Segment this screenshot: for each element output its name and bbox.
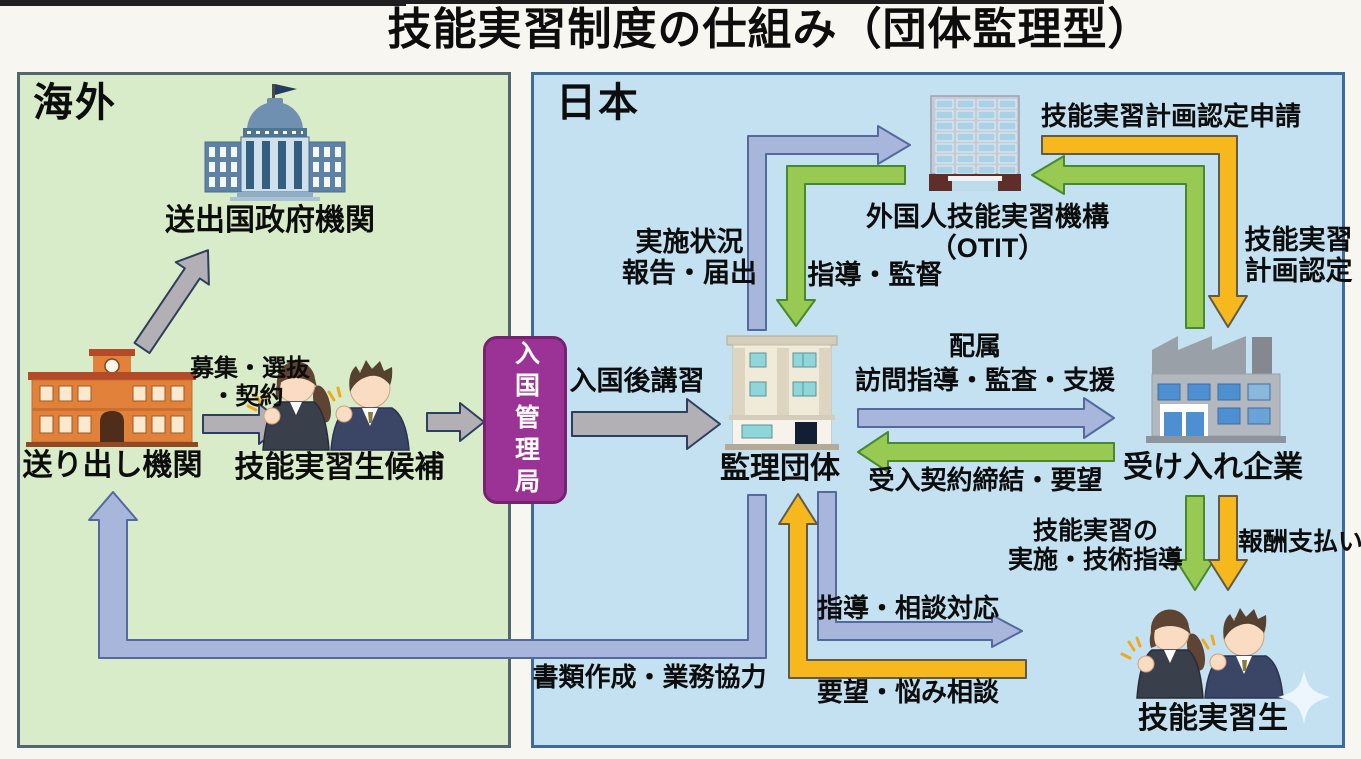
document-cooperation-label: 書類作成・業務協力 (532, 662, 767, 692)
plan-certification-label: 技能実習 計画認定 (1236, 225, 1361, 288)
visit-guidance-label: 訪問指導・監査・支援 (855, 365, 1110, 395)
diagram-canvas: 技能実習制度の仕組み（団体監理型） 海外 日本 送出国政府機関 送り出し機関 技… (0, 0, 1361, 759)
training-implementation-label: 技能実習の 実施・技術指導 (1008, 517, 1183, 575)
plan-application-label: 技能実習計画認定申請 (1035, 101, 1307, 131)
supervising-org-building-icon (725, 336, 839, 450)
government-building-icon (205, 84, 345, 201)
status-report-label: 実施状況 報告・届出 (612, 227, 767, 290)
request-consult-label: 要望・悩み相談 (808, 677, 1008, 707)
company-label: 受け入れ企業 (1118, 451, 1308, 486)
arrow-visit-guidance (858, 398, 1114, 438)
supervising-org-label: 監理団体 (695, 452, 865, 487)
arrow-to-government (125, 239, 224, 359)
arrow-request-consult (779, 494, 1026, 678)
overseas-region-label: 海外 (33, 80, 193, 126)
guidance-consult-label: 指導・相談対応 (808, 593, 1008, 623)
post-entry-training-label: 入国後講習 (562, 366, 712, 397)
page-title: 技能実習制度の仕組み（団体監理型） (180, 4, 1360, 55)
trainees-label: 技能実習生 (1118, 702, 1308, 737)
recruit-label: 募集・選抜 ・契約 (190, 355, 305, 411)
immigration-bureau-box: 入国管理局 (483, 336, 567, 504)
arrow-to-immigration (427, 403, 484, 441)
trainees-people-icon (1122, 608, 1283, 698)
immigration-bureau-label: 入国管理局 (513, 340, 538, 500)
acceptance-contract-label: 受入契約締結・要望 (858, 465, 1113, 495)
sending-org-label: 送り出し機関 (10, 449, 215, 484)
japan-region-label: 日本 (556, 80, 716, 126)
otit-building-icon (929, 96, 1021, 191)
guidance-supervision-label: 指導・監督 (800, 260, 950, 291)
salary-payment-label: 報酬支払い (1238, 528, 1361, 557)
government-label: 送出国政府機関 (130, 204, 410, 239)
sending-org-building-icon (26, 349, 198, 447)
company-factory-icon (1146, 336, 1286, 443)
assignment-label: 配属 (900, 331, 1050, 361)
candidates-label: 技能実習生候補 (222, 451, 457, 486)
arrow-document-cooperation (89, 492, 766, 658)
arrow-guidance-consult (818, 492, 1022, 647)
arrow-post-entry-training (572, 399, 720, 449)
otit-label: 外国人技能実習機構 （OTIT） (855, 202, 1120, 265)
